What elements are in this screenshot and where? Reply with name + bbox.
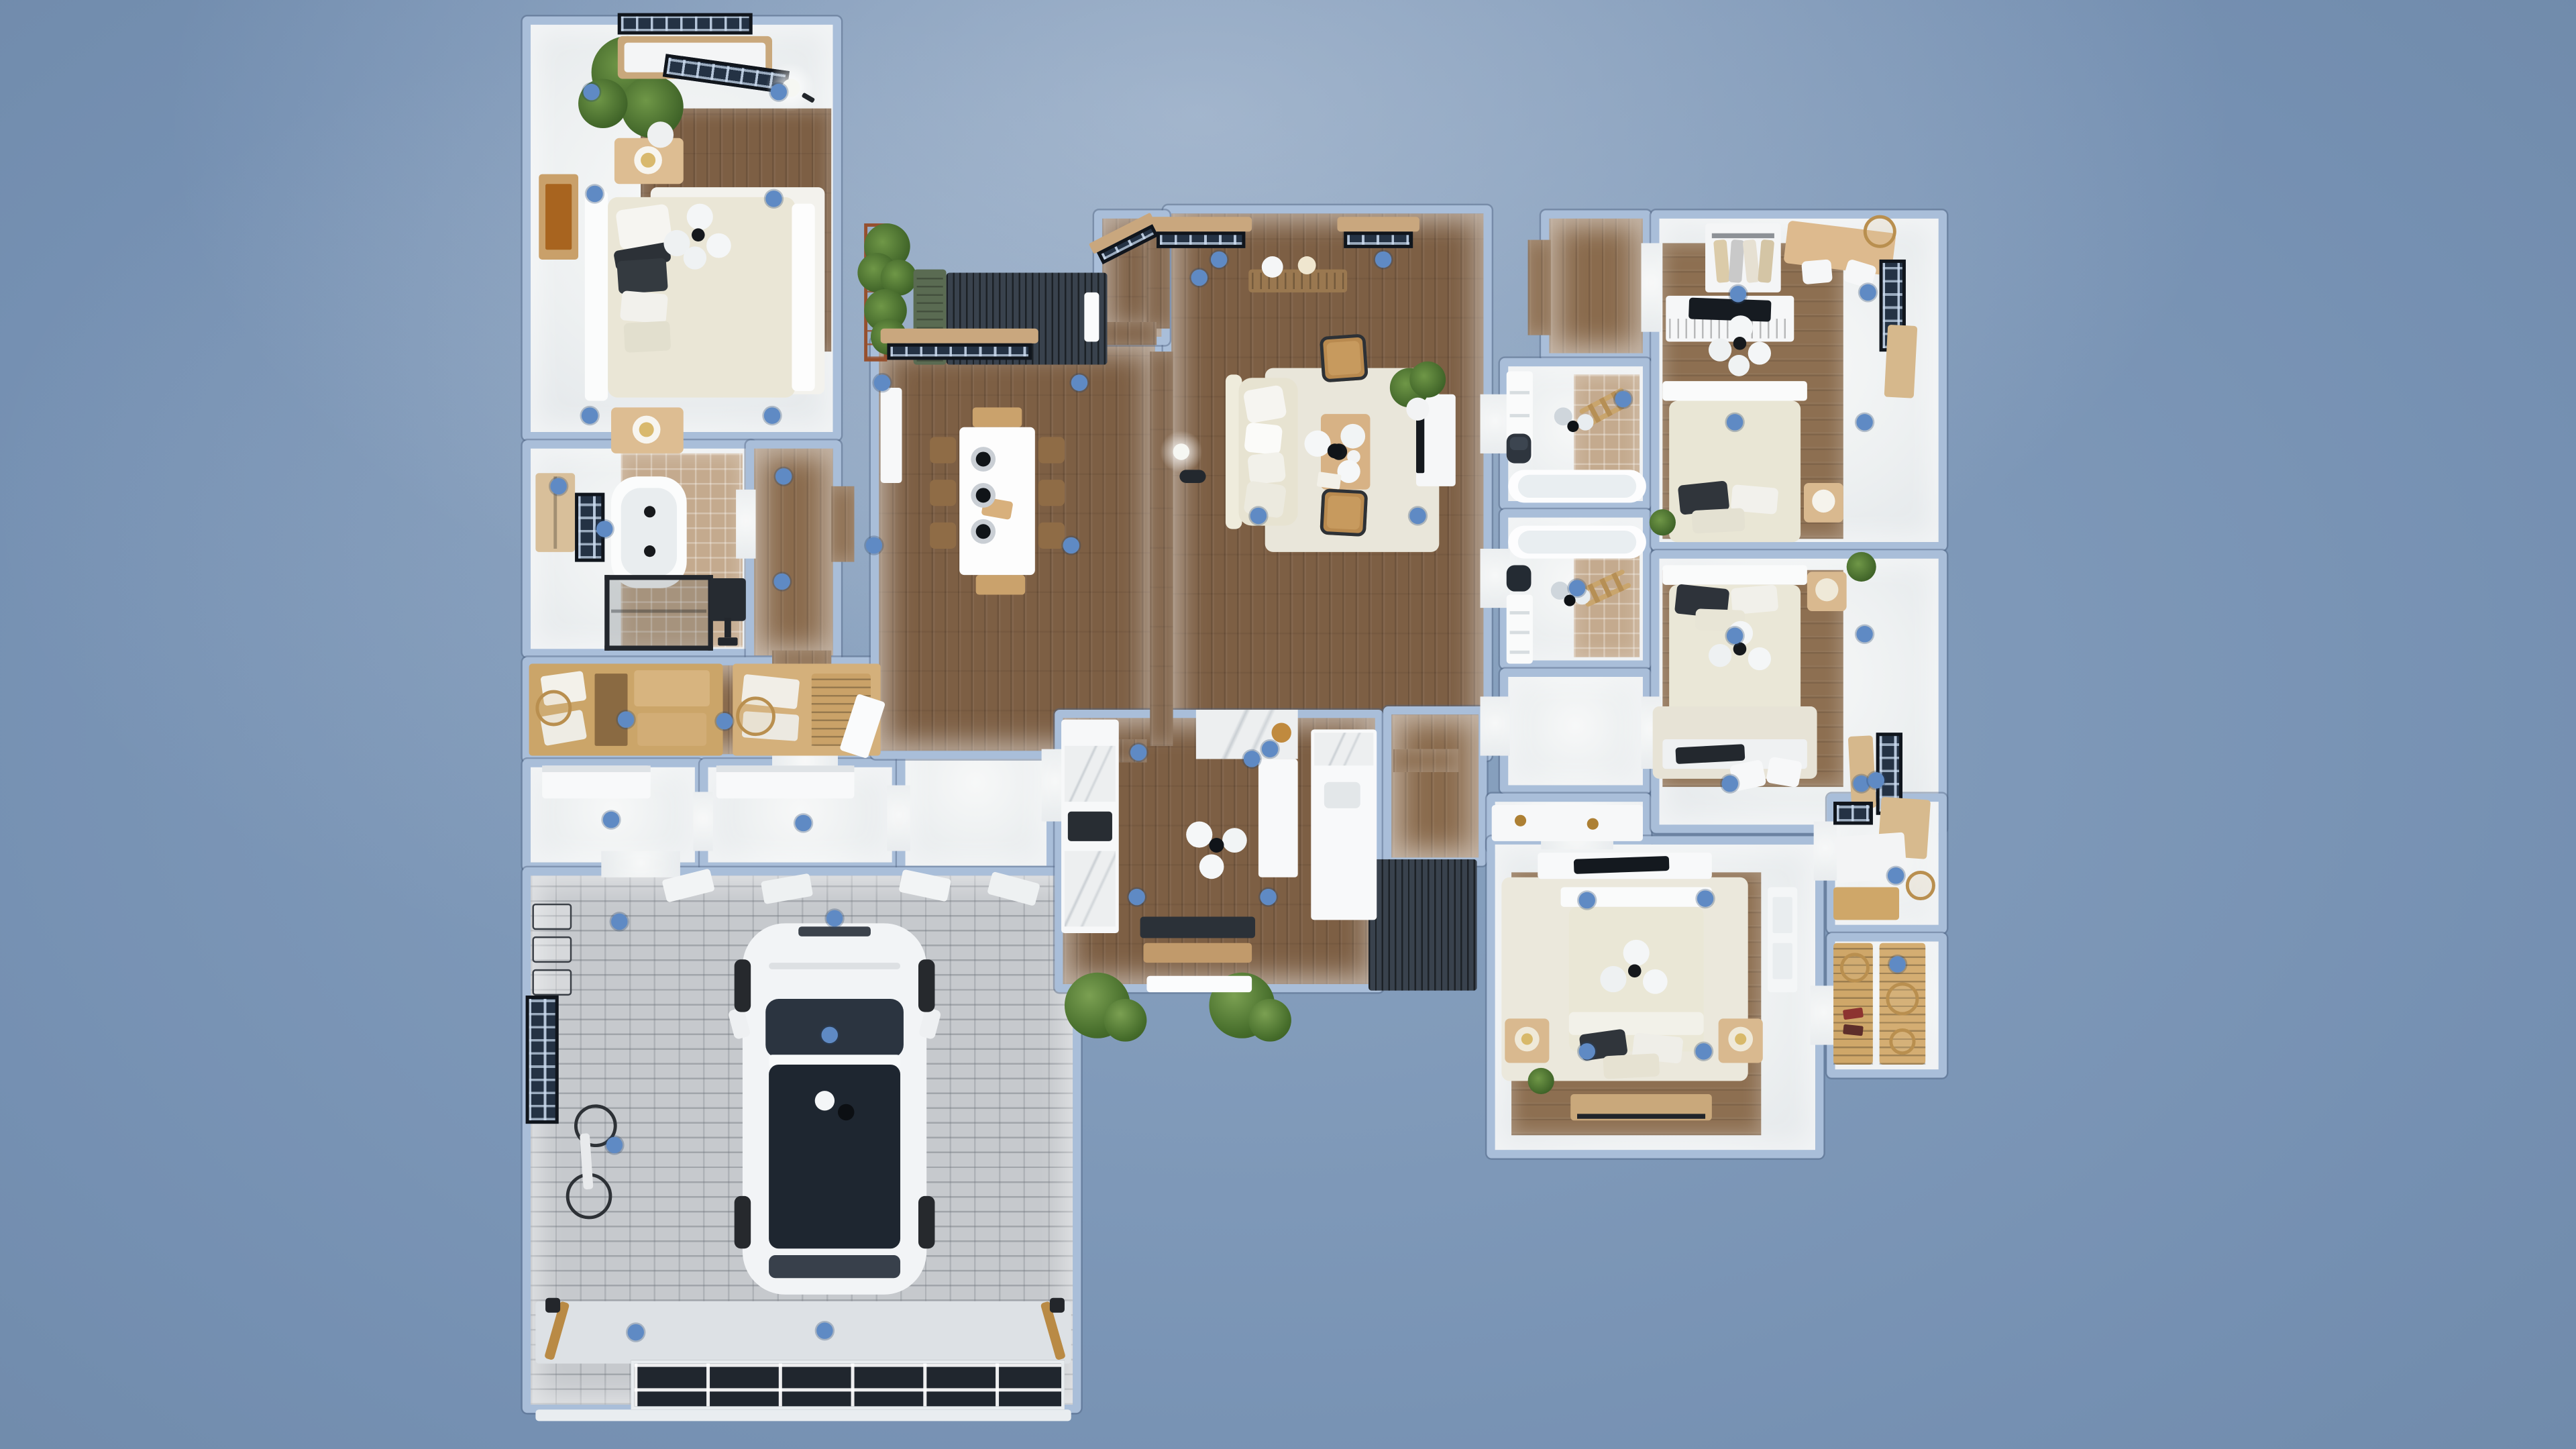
object-marker-dot[interactable] (1375, 252, 1391, 268)
object-marker-dot[interactable] (583, 84, 599, 100)
object-marker-dot[interactable] (1262, 741, 1278, 757)
bed-bedroom-1-part (1662, 381, 1807, 400)
back-deck (1368, 859, 1477, 991)
laundry-counter-part (1515, 815, 1526, 826)
kitchen-cabinets-left[interactable] (1061, 720, 1119, 933)
basket-closet-b[interactable] (736, 696, 775, 736)
closet-shelving-left-part (637, 713, 706, 746)
nightstand-bedroom-2-part (1815, 578, 1838, 601)
car-part (798, 926, 871, 936)
object-marker-dot[interactable] (874, 374, 890, 390)
media-console-part (1262, 256, 1283, 278)
floor-opening (1528, 240, 1551, 335)
dining-pendant-lights-part (976, 488, 991, 502)
ceiling-light-bedroom-3-part (1600, 966, 1626, 992)
nightstand-bedroom-1[interactable] (1804, 483, 1843, 523)
dining-chairs-left[interactable] (930, 437, 956, 575)
room-hall-cell[interactable] (1500, 669, 1651, 794)
object-marker-dot[interactable] (1889, 956, 1905, 972)
media-console[interactable] (1248, 270, 1347, 292)
object-marker-dot[interactable] (1695, 1043, 1711, 1059)
floor-mirror-hall-part (710, 578, 746, 621)
window-living-1[interactable] (1150, 217, 1252, 253)
wire-baskets-garage[interactable] (529, 904, 576, 999)
object-marker-dot[interactable] (1130, 744, 1146, 760)
toilet-bath-b-part (1507, 565, 1532, 591)
ceiling-light-bedroom-3-part (1628, 965, 1642, 978)
bed-bedroom-1-part (1692, 508, 1746, 533)
floor-opening (1393, 749, 1459, 772)
bed-bedroom-3-part (1569, 1012, 1704, 1035)
object-marker-dot[interactable] (603, 812, 619, 828)
kitchen-island-part (1258, 759, 1298, 877)
plant-bedroom-1[interactable] (1650, 509, 1676, 535)
object-marker-dot[interactable] (1730, 286, 1746, 302)
pendant-bath-a-part (1577, 414, 1593, 430)
garage-wall-shelves[interactable] (654, 871, 1055, 907)
ceiling-light-kitchen-part (1186, 821, 1212, 847)
vanity-bath-b-part (1510, 611, 1529, 614)
pendant-bath-a-part (1567, 421, 1578, 432)
object-marker-dot[interactable] (596, 521, 612, 537)
floor-plan-canvas[interactable] (0, 0, 2576, 1449)
sofa-part (1244, 422, 1283, 455)
nightstand-bedroom-3-left[interactable] (1505, 1018, 1549, 1063)
buffet-dining-part (881, 388, 902, 483)
plant-bedroom-3[interactable] (1528, 1068, 1554, 1097)
garage-apron-rails-part (545, 1298, 560, 1313)
ceiling-light-living[interactable] (1304, 424, 1370, 493)
floor-opening (736, 490, 755, 559)
wall-art-master[interactable] (539, 174, 578, 260)
dresser-tv-bedroom-3[interactable] (1538, 853, 1712, 879)
kitchen-cabinets-right-part (1324, 782, 1360, 808)
object-marker-dot[interactable] (765, 191, 782, 207)
front-bush-left[interactable] (1065, 973, 1146, 1049)
ceiling-light-bedroom-3-part (1623, 940, 1650, 966)
vanity-bath-a-part (1510, 414, 1529, 417)
ceiling-light-bedroom-2-part (1733, 643, 1747, 656)
window-living-1-part (1150, 217, 1252, 231)
window-master-1[interactable] (618, 13, 753, 35)
dining-pendant-lights[interactable] (969, 447, 999, 549)
wainscot-panel-bedroom-3-part (1772, 897, 1792, 933)
object-marker-dot[interactable] (795, 815, 811, 831)
kitchen-cabinets-right-part (1314, 733, 1373, 765)
object-marker-dot[interactable] (586, 186, 602, 202)
garage-door[interactable] (631, 1360, 1065, 1409)
object-marker-dot[interactable] (1211, 252, 1227, 268)
basket-closet-b-part (736, 696, 775, 736)
closet-b-contents-part (1886, 982, 1919, 1015)
wall-art-master-part (545, 184, 572, 250)
wardrobe-bedroom-1[interactable] (1705, 223, 1781, 292)
ceiling-light-bedroom-3[interactable] (1600, 940, 1669, 1009)
floor-lamp-living-part (1173, 443, 1189, 460)
object-marker-dot[interactable] (1697, 890, 1713, 906)
bed-master-part (616, 258, 668, 294)
floor-mirror-hall-part (724, 618, 731, 637)
window-garage[interactable] (526, 996, 559, 1124)
bed-master-part (792, 204, 814, 391)
bathtub-b-part (1518, 531, 1636, 553)
floor-opening (831, 486, 854, 562)
wainscot-panel-bedroom-3-part (1772, 943, 1792, 979)
object-marker-dot[interactable] (1244, 751, 1260, 767)
mudroom-cabinet-b[interactable] (716, 765, 855, 798)
object-marker-dot[interactable] (1191, 270, 1207, 286)
ceiling-light-master-part (684, 246, 706, 269)
floor-opening (1642, 243, 1661, 331)
kitchen-cabinets-left-part (1065, 851, 1116, 927)
nightstand-master-b[interactable] (611, 407, 684, 453)
object-marker-dot[interactable] (582, 407, 598, 423)
window-living-2-part (1344, 231, 1413, 248)
object-marker-dot[interactable] (1409, 508, 1426, 524)
dining-pendant-lights-part (976, 524, 991, 539)
object-marker-dot[interactable] (1260, 889, 1276, 905)
object-marker-dot[interactable] (1615, 391, 1631, 407)
plant-bedroom-2-part (1847, 552, 1876, 582)
car-part (838, 1104, 854, 1120)
car-part (918, 959, 934, 1012)
entry-door-part (1084, 292, 1099, 341)
object-marker-dot[interactable] (764, 407, 780, 423)
vanity-bath-b[interactable] (1507, 595, 1533, 664)
front-bush-left-part (1104, 999, 1147, 1042)
ceiling-light-master[interactable] (663, 204, 733, 273)
car[interactable] (743, 914, 926, 1305)
object-marker-dot[interactable] (1888, 867, 1904, 883)
kitchen-cabinets-left-part (1068, 812, 1112, 841)
bathtub-a[interactable] (1508, 470, 1646, 502)
plant-living-part (1406, 398, 1429, 421)
garage-apron-rails (542, 1298, 1068, 1367)
back-deck-part (1368, 859, 1477, 991)
room-hall-left[interactable] (746, 440, 841, 663)
garage-apron-rails-part (1050, 1298, 1065, 1313)
object-marker-dot[interactable] (1071, 374, 1087, 390)
ceiling-light-bedroom-2-part (1709, 644, 1731, 667)
entry-door[interactable] (1084, 292, 1099, 341)
garage-wall-shelves-part (661, 868, 715, 902)
mudroom-cabinet-b-part (716, 765, 855, 772)
shower-master-part (604, 645, 713, 650)
pinboard-bedroom-1[interactable] (1884, 325, 1918, 398)
garage-wall-shelves-part (987, 871, 1040, 906)
bed-master-part (624, 321, 672, 353)
window-dining-part (881, 329, 1038, 343)
object-marker-dot[interactable] (1853, 775, 1869, 792)
ceiling-light-living-part (1328, 443, 1342, 458)
sofa-part (1243, 384, 1287, 423)
bed-bedroom-1[interactable] (1662, 381, 1807, 549)
floor-lamp-living[interactable] (1160, 431, 1209, 486)
plant-bedroom-1-part (1650, 509, 1676, 535)
vanity-master-bath-part (644, 545, 655, 557)
plant-bedroom-2[interactable] (1847, 552, 1876, 582)
entry-mat-south-part (1143, 943, 1252, 963)
object-marker-dot[interactable] (1569, 580, 1585, 596)
vanity-master-bath-part (621, 488, 677, 576)
mudroom-cabinet-a-part (542, 765, 651, 772)
floor-opening (693, 792, 712, 851)
pinboard-bedroom-1-part (1884, 325, 1918, 398)
object-marker-dot[interactable] (816, 1322, 833, 1338)
window-dining-part (887, 343, 1032, 360)
ceiling-light-bedroom-1-part (1733, 337, 1747, 350)
object-marker-dot[interactable] (1868, 772, 1884, 788)
object-marker-dot[interactable] (771, 84, 787, 100)
wainscot-panel-bedroom-3[interactable] (1768, 887, 1797, 992)
object-marker-dot[interactable] (1578, 892, 1595, 908)
dining-chairs-left-part (930, 437, 956, 463)
bed-bedroom-2-part (1662, 565, 1807, 584)
shower-master-part (604, 575, 609, 651)
floor-mirror-hall-part (718, 637, 737, 645)
ceiling-light-bedroom-2-part (1748, 647, 1771, 670)
ceiling-light-kitchen-part (1199, 854, 1224, 879)
bed-master-part (620, 290, 668, 324)
bed-master-part (585, 191, 608, 400)
car-part (769, 1065, 900, 1248)
dining-chairs-right-part (1038, 437, 1065, 463)
floor-mirror-hall[interactable] (706, 578, 749, 651)
closet-a-contents-part (1833, 802, 1873, 824)
ceiling-light-bedroom-1-part (1748, 341, 1771, 364)
object-marker-dot[interactable] (1063, 537, 1079, 553)
ceiling-light-kitchen[interactable] (1186, 818, 1252, 884)
floor-opening (887, 786, 910, 851)
nightstand-bedroom-3-right[interactable] (1719, 1018, 1763, 1063)
closet-a-contents-part (1833, 887, 1899, 920)
dining-chairs-right-part (1038, 480, 1065, 506)
accent-chair-bottom[interactable] (1320, 488, 1368, 537)
kitchen-island-part (1272, 723, 1291, 743)
bed-bedroom-3-part (1603, 1053, 1660, 1079)
laundry-counter-part (1587, 818, 1599, 830)
vanity-master-bath-part (644, 506, 655, 517)
shower-master-part (611, 610, 706, 613)
vanity-bath-b-part (1510, 651, 1529, 654)
object-marker-dot[interactable] (550, 478, 566, 494)
toilet-bath-b[interactable] (1507, 565, 1532, 591)
nightstand-master-a-part (641, 153, 655, 168)
front-door-south-part (1146, 976, 1252, 992)
front-bush-right-part (1248, 999, 1291, 1042)
ceiling-light-bedroom-3-part (1643, 969, 1668, 994)
desk-bedroom-2-part (1766, 756, 1803, 788)
plant-bedroom-3-part (1528, 1068, 1554, 1094)
sofa-part (1247, 451, 1286, 484)
vanity-bath-a-part (1510, 391, 1529, 394)
garage-wall-shelves-part (761, 873, 813, 905)
bench-bedroom-3-part (1577, 1114, 1705, 1118)
car-part (735, 1196, 751, 1248)
object-marker-dot[interactable] (628, 1324, 644, 1340)
ceiling-light-master-part (706, 233, 731, 258)
nightstand-bedroom-1-part (1812, 490, 1835, 513)
dining-chairs-right[interactable] (1038, 437, 1065, 575)
object-marker-dot[interactable] (1856, 414, 1872, 430)
object-marker-dot[interactable] (826, 910, 843, 926)
dining-chairs-left-part (930, 480, 956, 506)
object-marker-dot[interactable] (1722, 775, 1738, 792)
garage-wall-shelves-part (898, 869, 951, 902)
car-part (815, 1091, 835, 1110)
object-marker-dot[interactable] (1860, 284, 1876, 301)
entry-mat-south[interactable] (1140, 917, 1255, 966)
entry-mat-south-part (1140, 917, 1255, 938)
ceiling-light-living-part (1340, 424, 1365, 449)
object-marker-dot[interactable] (716, 713, 733, 729)
dining-chairs-right-part (1038, 523, 1065, 549)
object-marker-dot[interactable] (1727, 628, 1743, 644)
floor-opening (1150, 352, 1173, 746)
room-hall-south[interactable] (1383, 706, 1487, 866)
object-marker-dot[interactable] (1727, 414, 1743, 430)
plant-master-part (647, 121, 674, 148)
kitchen-cabinets-right[interactable] (1311, 729, 1377, 920)
closet-a-contents-part (1906, 871, 1935, 900)
object-marker-dot[interactable] (1856, 626, 1872, 642)
window-garage-part (526, 996, 559, 1124)
window-master-1-part (618, 13, 753, 35)
floor-opening (1481, 549, 1510, 608)
window-living-2-part (1337, 217, 1419, 231)
shower-master[interactable] (604, 575, 713, 651)
object-marker-dot[interactable] (611, 914, 627, 930)
basket-closet-a-part (535, 690, 572, 727)
toilet-bath-a-part (1510, 437, 1528, 450)
laundry-counter-part (1492, 805, 1643, 841)
floor-opening (1481, 394, 1510, 453)
object-marker-dot[interactable] (618, 711, 634, 727)
shower-master-part (604, 575, 713, 580)
car-part (769, 1255, 900, 1278)
toilet-bath-a[interactable] (1507, 434, 1532, 464)
ceiling-light-bedroom-1-part (1709, 338, 1731, 361)
object-marker-dot[interactable] (821, 1027, 837, 1043)
vanity-master-bath[interactable] (611, 476, 687, 588)
garage-sill (535, 1409, 1071, 1421)
garage-sill-part (535, 1409, 1071, 1421)
car-part (735, 959, 751, 1012)
nightstand-master-b-part (639, 422, 654, 437)
ceiling-light-living-part (1317, 472, 1342, 490)
car-part (769, 963, 900, 969)
closet-shelving-left-part (595, 674, 628, 746)
dining-chairs-left-part (930, 523, 956, 549)
wire-baskets-garage-part (532, 904, 572, 930)
dining-table-part (973, 407, 1022, 427)
object-marker-dot[interactable] (775, 468, 792, 484)
car-part (918, 1196, 934, 1248)
wardrobe-bedroom-1-part (1712, 233, 1774, 238)
object-marker-dot[interactable] (1578, 1043, 1595, 1059)
bathtub-a-part (1518, 475, 1636, 498)
sofa[interactable] (1226, 374, 1298, 529)
closet-b-contents-part (1843, 1024, 1864, 1036)
pendant-bath-a[interactable] (1554, 407, 1597, 443)
object-marker-dot[interactable] (773, 574, 790, 590)
desk-bedroom-1-part (1801, 259, 1833, 284)
object-marker-dot[interactable] (606, 1137, 623, 1153)
ceiling-light-kitchen-part (1222, 828, 1247, 853)
front-door-south[interactable] (1146, 976, 1252, 992)
window-living-1-part (1157, 231, 1245, 248)
closet-b-contents[interactable] (1830, 940, 1942, 1071)
nightstand-bedroom-2[interactable] (1807, 572, 1847, 611)
floor-opening (1481, 696, 1510, 755)
wire-baskets-garage-part (532, 969, 572, 996)
ceiling-light-master-part (687, 204, 713, 230)
plant-living[interactable] (1390, 362, 1446, 424)
accent-chair-top[interactable] (1320, 333, 1368, 382)
vanity-bath-b-part (1510, 631, 1529, 634)
closet-b-contents-part (1840, 953, 1870, 982)
accent-chair-top-part (1320, 333, 1368, 382)
plant-living-part (1409, 362, 1446, 398)
basket-closet-a[interactable] (535, 690, 572, 727)
pendant-bath-b-part (1564, 595, 1575, 606)
object-marker-dot[interactable] (1128, 889, 1144, 905)
buffet-dining[interactable] (881, 388, 902, 483)
ceiling-light-living-part (1304, 431, 1330, 457)
ceiling-light-master-part (692, 228, 705, 241)
nightstand-bedroom-3-right-part (1735, 1033, 1746, 1044)
kitchen-cabinets-left-part (1065, 746, 1116, 802)
nightstand-bedroom-3-left-part (1521, 1033, 1533, 1044)
bathtub-b[interactable] (1508, 526, 1646, 559)
floor-lamp-living-part (1179, 470, 1205, 483)
media-console-part (1298, 256, 1316, 274)
dining-pendant-lights-part (976, 451, 991, 466)
ceiling-light-bedroom-1[interactable] (1709, 315, 1771, 378)
bicycle[interactable] (551, 1102, 625, 1222)
accent-chair-bottom-part (1320, 488, 1368, 537)
ceiling-light-bedroom-1-part (1728, 355, 1750, 376)
ceiling-light-kitchen-part (1209, 838, 1224, 853)
laundry-counter[interactable] (1492, 805, 1643, 841)
bench-bedroom-3[interactable] (1570, 1094, 1712, 1120)
room-corridor-wing[interactable] (1541, 210, 1651, 361)
wire-baskets-garage-part (532, 936, 572, 963)
closet-a-contents[interactable] (1830, 798, 1942, 926)
object-marker-dot[interactable] (866, 537, 882, 553)
floor-opening (1101, 322, 1157, 345)
window-dining[interactable] (881, 329, 1038, 362)
mudroom-cabinet-a[interactable] (542, 765, 651, 798)
garage-door-part (631, 1360, 1065, 1409)
closet-shelving-left-part (634, 670, 710, 706)
dining-table-part (976, 575, 1025, 594)
closet-b-contents-part (1889, 1028, 1915, 1055)
object-marker-dot[interactable] (1250, 508, 1267, 524)
window-living-2[interactable] (1337, 217, 1419, 253)
